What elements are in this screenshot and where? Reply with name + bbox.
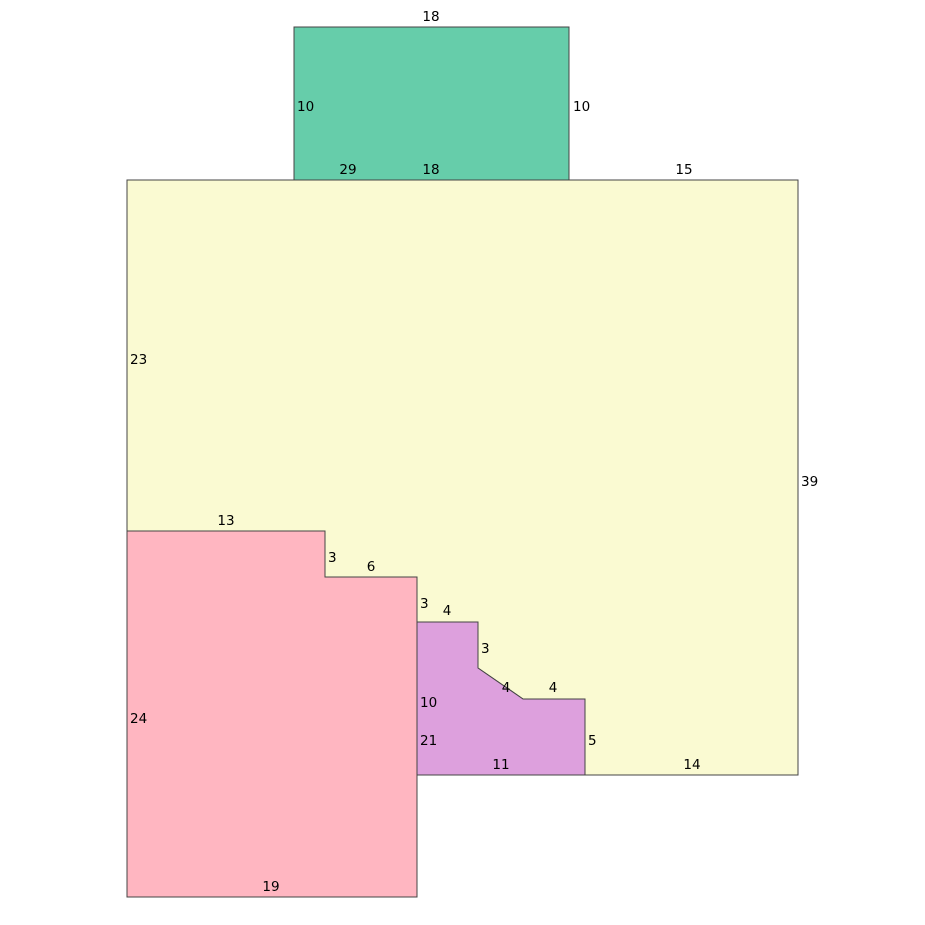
edge-length-label: 10 [297, 99, 314, 115]
edge-length-label: 24 [130, 711, 147, 727]
edge-length-label: 15 [675, 162, 692, 178]
shape-pink-polygon [127, 531, 417, 897]
diagram-canvas: 18101029181523391336343441021115142419 [0, 0, 925, 925]
edge-length-label: 29 [339, 162, 356, 178]
edge-length-label: 39 [801, 474, 818, 490]
edge-length-label: 3 [481, 641, 490, 657]
edge-length-label: 10 [420, 695, 437, 711]
edge-length-label: 21 [420, 733, 437, 749]
edge-length-label: 3 [420, 596, 429, 612]
edge-length-label: 23 [130, 352, 147, 368]
shape-green-rectangle [294, 27, 569, 180]
edge-length-label: 18 [422, 9, 439, 25]
edge-length-label: 6 [367, 559, 376, 575]
edge-length-label: 11 [492, 757, 509, 773]
edge-length-label: 18 [422, 162, 439, 178]
edge-length-label: 4 [549, 680, 558, 696]
edge-length-label: 14 [683, 757, 700, 773]
edge-length-label: 4 [443, 603, 452, 619]
edge-length-label: 5 [588, 733, 597, 749]
polygon-packing-diagram: 18101029181523391336343441021115142419 [0, 0, 925, 925]
edge-length-label: 19 [262, 879, 279, 895]
edge-length-label: 3 [328, 550, 337, 566]
edge-length-label: 13 [217, 513, 234, 529]
edge-length-label: 10 [573, 99, 590, 115]
edge-length-label: 4 [502, 680, 511, 696]
